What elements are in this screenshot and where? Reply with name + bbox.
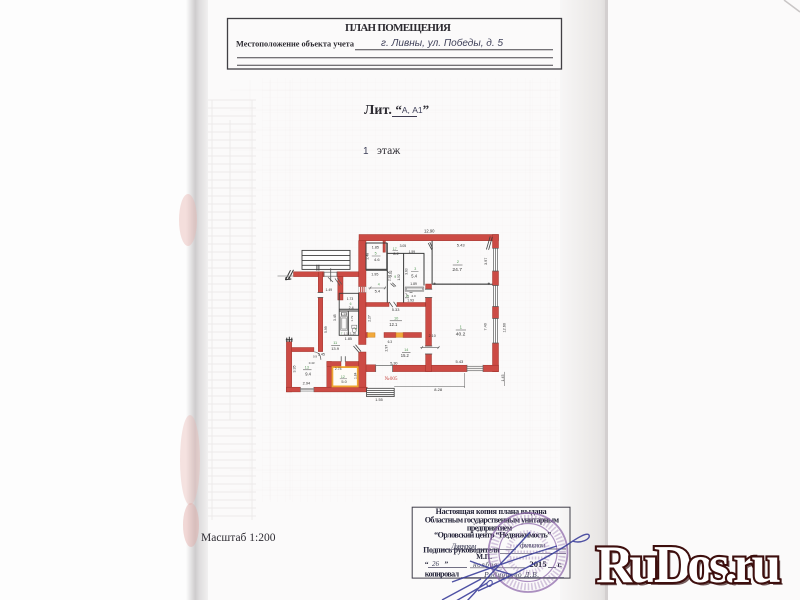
svg-text:1.95: 1.95: [371, 273, 378, 277]
svg-text:5.4: 5.4: [411, 273, 417, 278]
svg-text:1.52: 1.52: [397, 274, 401, 280]
svg-text:5.99: 5.99: [324, 326, 328, 333]
svg-text:13: 13: [305, 366, 309, 370]
svg-text:2.94: 2.94: [303, 381, 311, 386]
svg-text:”: ”: [445, 559, 449, 568]
svg-text:1.73: 1.73: [350, 315, 354, 321]
svg-text:6.3: 6.3: [388, 340, 393, 344]
svg-text:12.90: 12.90: [424, 229, 435, 234]
svg-text:1.89: 1.89: [410, 282, 417, 286]
svg-text:1.12: 1.12: [344, 332, 350, 336]
svg-text:12.60: 12.60: [503, 323, 507, 333]
svg-text:26: 26: [432, 560, 440, 568]
svg-text:14: 14: [404, 348, 408, 352]
svg-text:0.9: 0.9: [313, 355, 317, 359]
svg-text:8.28: 8.28: [434, 387, 443, 392]
svg-text:3.45: 3.45: [318, 352, 325, 356]
svg-text:3.35: 3.35: [292, 366, 296, 373]
svg-text:3.97: 3.97: [484, 258, 488, 265]
svg-text:3.05: 3.05: [400, 244, 407, 248]
svg-text:Масштаб 1:200: Масштаб 1:200: [201, 532, 276, 544]
svg-text:1.14: 1.14: [341, 312, 347, 316]
svg-text:9.4: 9.4: [305, 372, 311, 377]
svg-text:5.43: 5.43: [457, 243, 466, 248]
svg-text:12.1: 12.1: [389, 322, 398, 327]
svg-text:Местоположение объекта учета: Местоположение объекта учета: [236, 40, 355, 49]
svg-text:13.9: 13.9: [331, 346, 340, 351]
svg-text:2.4: 2.4: [349, 306, 354, 310]
svg-text:г. Ливны, ул. Победы, д. 5: г. Ливны, ул. Победы, д. 5: [381, 37, 503, 49]
svg-text:ПЛАН ПОМЕЩЕНИЯ: ПЛАН ПОМЕЩЕНИЯ: [345, 22, 451, 34]
svg-text:5.43: 5.43: [456, 359, 465, 364]
svg-text:5.0: 5.0: [341, 379, 347, 384]
svg-text:1.45: 1.45: [501, 375, 505, 382]
svg-text:3: 3: [414, 267, 416, 271]
svg-text:1.55: 1.55: [375, 398, 382, 402]
svg-text:1.16: 1.16: [350, 332, 356, 336]
svg-text:№005: №005: [385, 376, 398, 382]
svg-text:2.97: 2.97: [384, 345, 388, 352]
svg-text:копировал: копировал: [425, 569, 460, 578]
svg-text:1.84: 1.84: [353, 372, 357, 379]
svg-text:5: 5: [375, 252, 377, 256]
svg-text:3.60: 3.60: [404, 268, 408, 275]
svg-text:4.6: 4.6: [374, 257, 380, 262]
svg-text:2.74: 2.74: [335, 367, 342, 371]
svg-text:11: 11: [333, 340, 337, 345]
svg-text:2.92: 2.92: [388, 275, 392, 281]
svg-text:2.48: 2.48: [365, 253, 369, 260]
svg-text:8.2: 8.2: [393, 251, 399, 256]
svg-text:1.85: 1.85: [345, 337, 352, 341]
svg-text:RuDos.ru: RuDos.ru: [596, 536, 781, 594]
svg-text:7.40: 7.40: [483, 323, 487, 330]
svg-text:1.73: 1.73: [347, 297, 354, 301]
svg-text:5.4: 5.4: [375, 288, 381, 293]
svg-text:40.2: 40.2: [456, 332, 466, 338]
svg-text:5.30: 5.30: [390, 361, 397, 365]
svg-text:1.49: 1.49: [326, 288, 333, 292]
svg-text:1.85: 1.85: [372, 245, 379, 249]
svg-text:2.27: 2.27: [368, 315, 372, 322]
svg-text:1.93: 1.93: [407, 298, 414, 302]
svg-text:12: 12: [341, 375, 345, 379]
svg-text:0.43: 0.43: [309, 361, 315, 365]
svg-text:24.7: 24.7: [452, 267, 462, 273]
svg-text:15.2: 15.2: [401, 353, 410, 358]
svg-text:1.59: 1.59: [409, 250, 416, 254]
svg-text:4: 4: [378, 282, 380, 286]
svg-text:17: 17: [393, 247, 397, 251]
svg-text:“: “: [425, 559, 429, 568]
svg-text:3.45: 3.45: [333, 314, 337, 321]
svg-text:2.10: 2.10: [429, 334, 436, 338]
svg-text:5.33: 5.33: [392, 307, 400, 312]
